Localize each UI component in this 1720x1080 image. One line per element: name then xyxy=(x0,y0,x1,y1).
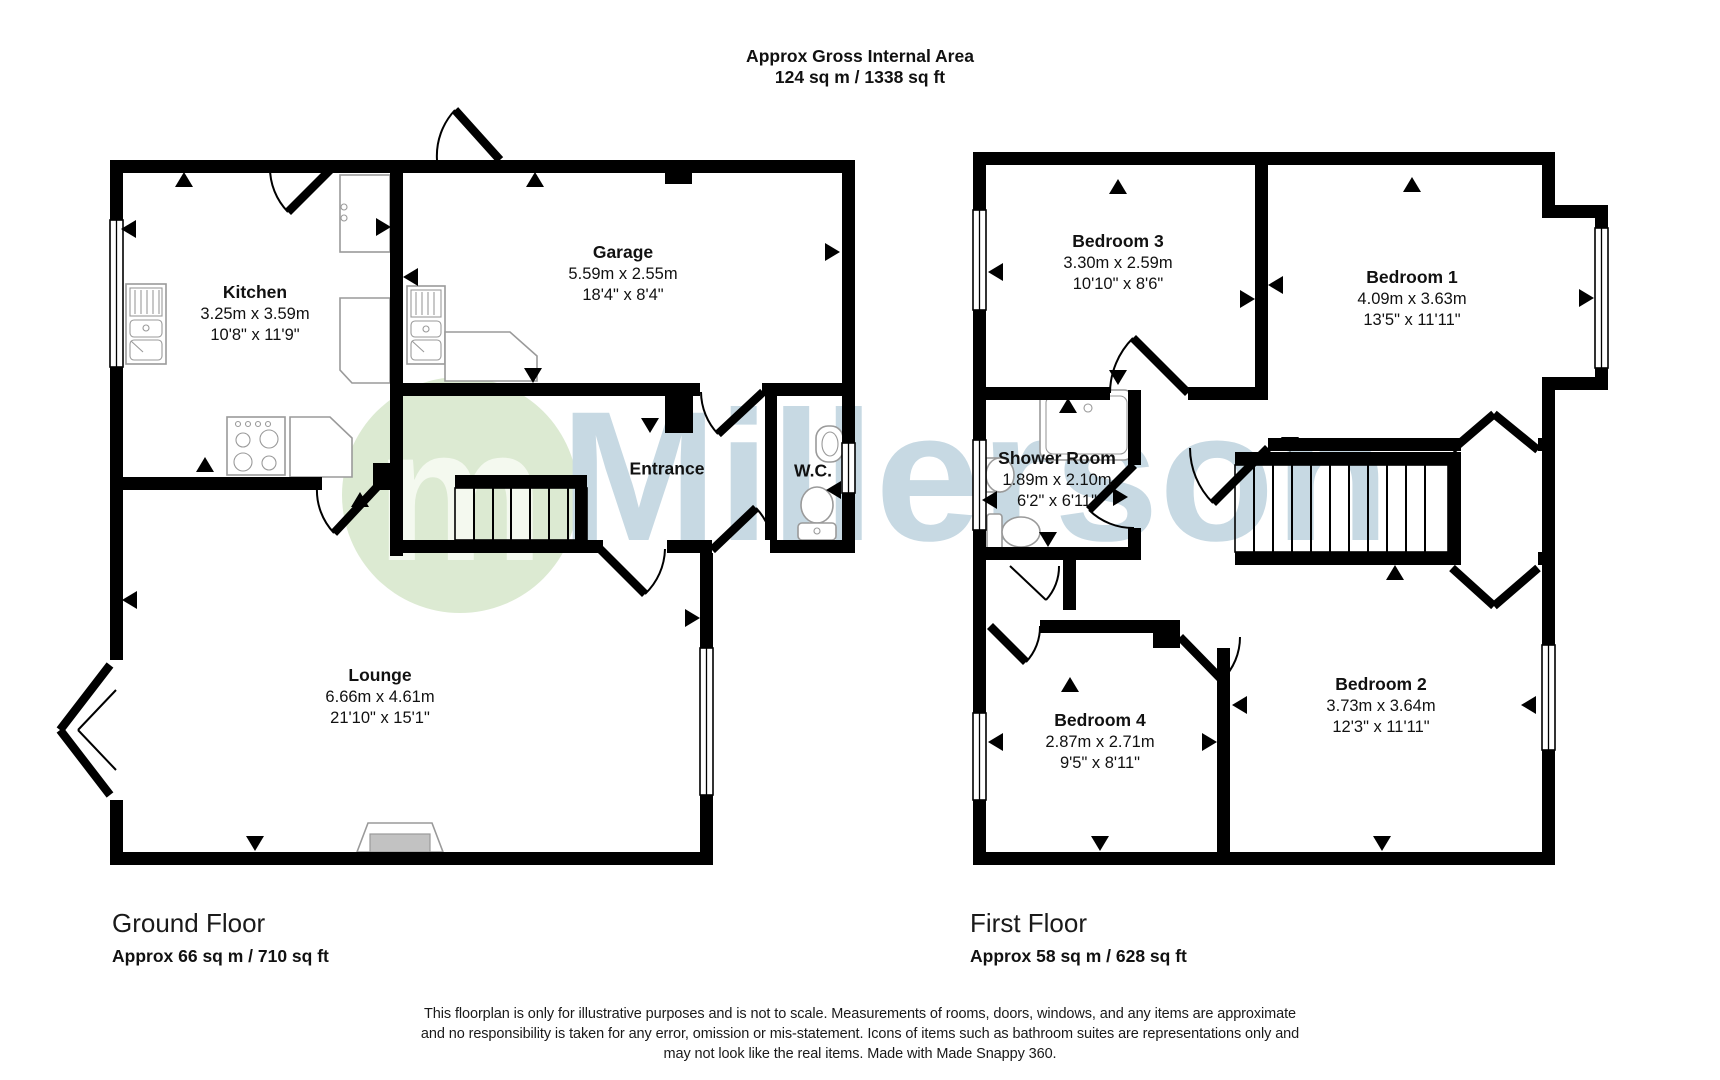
disclaimer-line-2: and no responsibility is taken for any e… xyxy=(421,1026,1299,1042)
room-label-bedroom1: Bedroom 1 4.09m x 3.63m 13'5" x 11'11" xyxy=(1357,267,1466,332)
kitchen-counter xyxy=(340,298,390,383)
garage-sink xyxy=(407,286,445,364)
window xyxy=(842,443,855,493)
double-doors xyxy=(1452,568,1538,606)
disclaimer-line-1: This floorplan is only for illustrative … xyxy=(424,1006,1296,1022)
stove xyxy=(227,417,285,475)
french-doors xyxy=(60,665,116,795)
door xyxy=(990,626,1040,662)
room-label-bedroom3: Bedroom 3 3.30m x 2.59m 10'10" x 8'6" xyxy=(1063,231,1172,296)
window xyxy=(973,440,986,530)
room-label-wc: W.C. xyxy=(794,460,832,482)
kitchen-counter xyxy=(290,417,352,477)
ground-floor-area: Approx 66 sq m / 710 sq ft xyxy=(112,946,329,967)
garage-counter xyxy=(445,332,537,381)
room-label-kitchen: Kitchen 3.25m x 3.59m 10'8" x 11'9" xyxy=(200,282,309,347)
wc-toilet xyxy=(798,487,836,540)
window xyxy=(110,220,123,367)
first-floor-caption: First Floor Approx 58 sq m / 628 sq ft xyxy=(970,908,1187,967)
window xyxy=(700,648,713,795)
first-floor-area: Approx 58 sq m / 628 sq ft xyxy=(970,946,1187,967)
room-label-lounge: Lounge 6.66m x 4.61m 21'10" x 15'1" xyxy=(325,665,434,730)
first-floor-name: First Floor xyxy=(970,908,1187,939)
ground-floor-caption: Ground Floor Approx 66 sq m / 710 sq ft xyxy=(112,908,329,967)
room-label-entrance: Entrance xyxy=(630,458,705,480)
kitchen-sink xyxy=(126,284,166,364)
door xyxy=(1180,637,1240,680)
floorplan-page: m Millerson xyxy=(0,0,1720,1080)
gross-area-value: 124 sq m / 1338 sq ft xyxy=(775,67,945,87)
gross-area-title: Approx Gross Internal Area xyxy=(746,46,974,66)
double-doors xyxy=(1452,414,1538,450)
window xyxy=(973,713,986,800)
ground-floor-name: Ground Floor xyxy=(112,908,329,939)
window xyxy=(973,210,986,310)
wc-basin xyxy=(816,426,843,462)
room-label-shower-room: Shower Room 1.89m x 2.10m 6'2" x 6'11" xyxy=(998,448,1116,513)
window xyxy=(1595,228,1608,368)
room-label-bedroom4: Bedroom 4 2.87m x 2.71m 9'5" x 8'11" xyxy=(1045,710,1154,775)
disclaimer-line-3: may not look like the real items. Made w… xyxy=(664,1046,1057,1062)
room-label-garage: Garage 5.59m x 2.55m 18'4" x 8'4" xyxy=(568,242,677,307)
door xyxy=(270,167,333,212)
window xyxy=(1542,645,1555,750)
fireplace xyxy=(357,823,443,852)
kitchen-counter xyxy=(340,175,390,252)
page-title: Approx Gross Internal Area 124 sq m / 13… xyxy=(746,46,974,88)
door xyxy=(437,110,500,160)
watermark: m Millerson xyxy=(342,374,1390,613)
room-label-bedroom2: Bedroom 2 3.73m x 3.64m 12'3" x 11'11" xyxy=(1326,674,1435,739)
